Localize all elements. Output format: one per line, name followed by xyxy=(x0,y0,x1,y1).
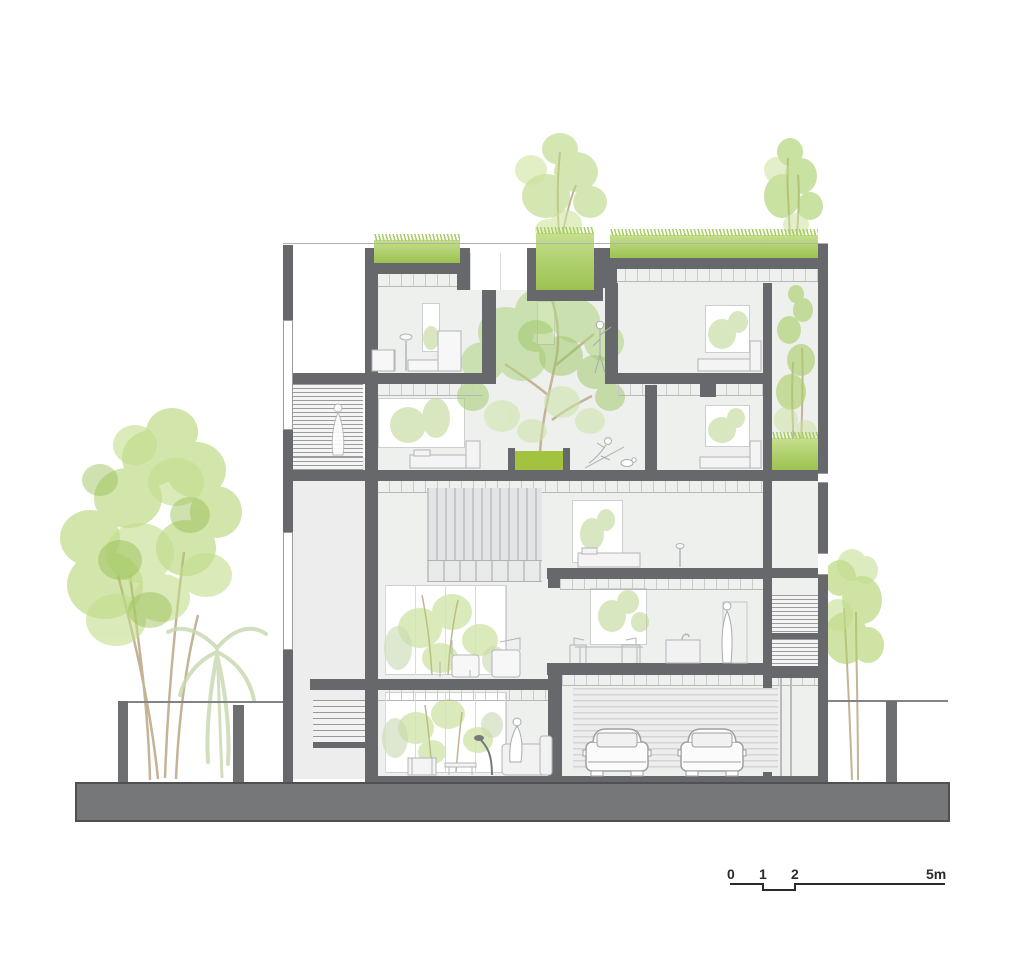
detail-layer xyxy=(0,0,1024,959)
bedroom-4f-right-furniture xyxy=(698,341,761,371)
balcony-person xyxy=(593,321,611,373)
scale-bar-line xyxy=(720,866,960,896)
car-left xyxy=(583,729,651,776)
bedroom-3f-right-furniture xyxy=(621,441,761,468)
architectural-section-drawing: 0 1 2 5m xyxy=(0,0,1024,959)
bedroom-4f-left-furniture xyxy=(372,331,461,371)
stair-person xyxy=(332,404,344,455)
scale-bar: 0 1 2 5m xyxy=(720,866,960,896)
living-1f-furniture xyxy=(408,735,552,775)
car-right xyxy=(678,729,746,776)
bedroom-2f-furniture xyxy=(578,544,684,568)
exercise-person xyxy=(585,438,624,469)
living-2f-furniture xyxy=(440,638,520,677)
dining-furniture xyxy=(570,602,747,663)
bedroom-3f-left-furniture xyxy=(410,441,480,468)
dining-person xyxy=(722,602,732,663)
sitting-person xyxy=(510,718,522,762)
